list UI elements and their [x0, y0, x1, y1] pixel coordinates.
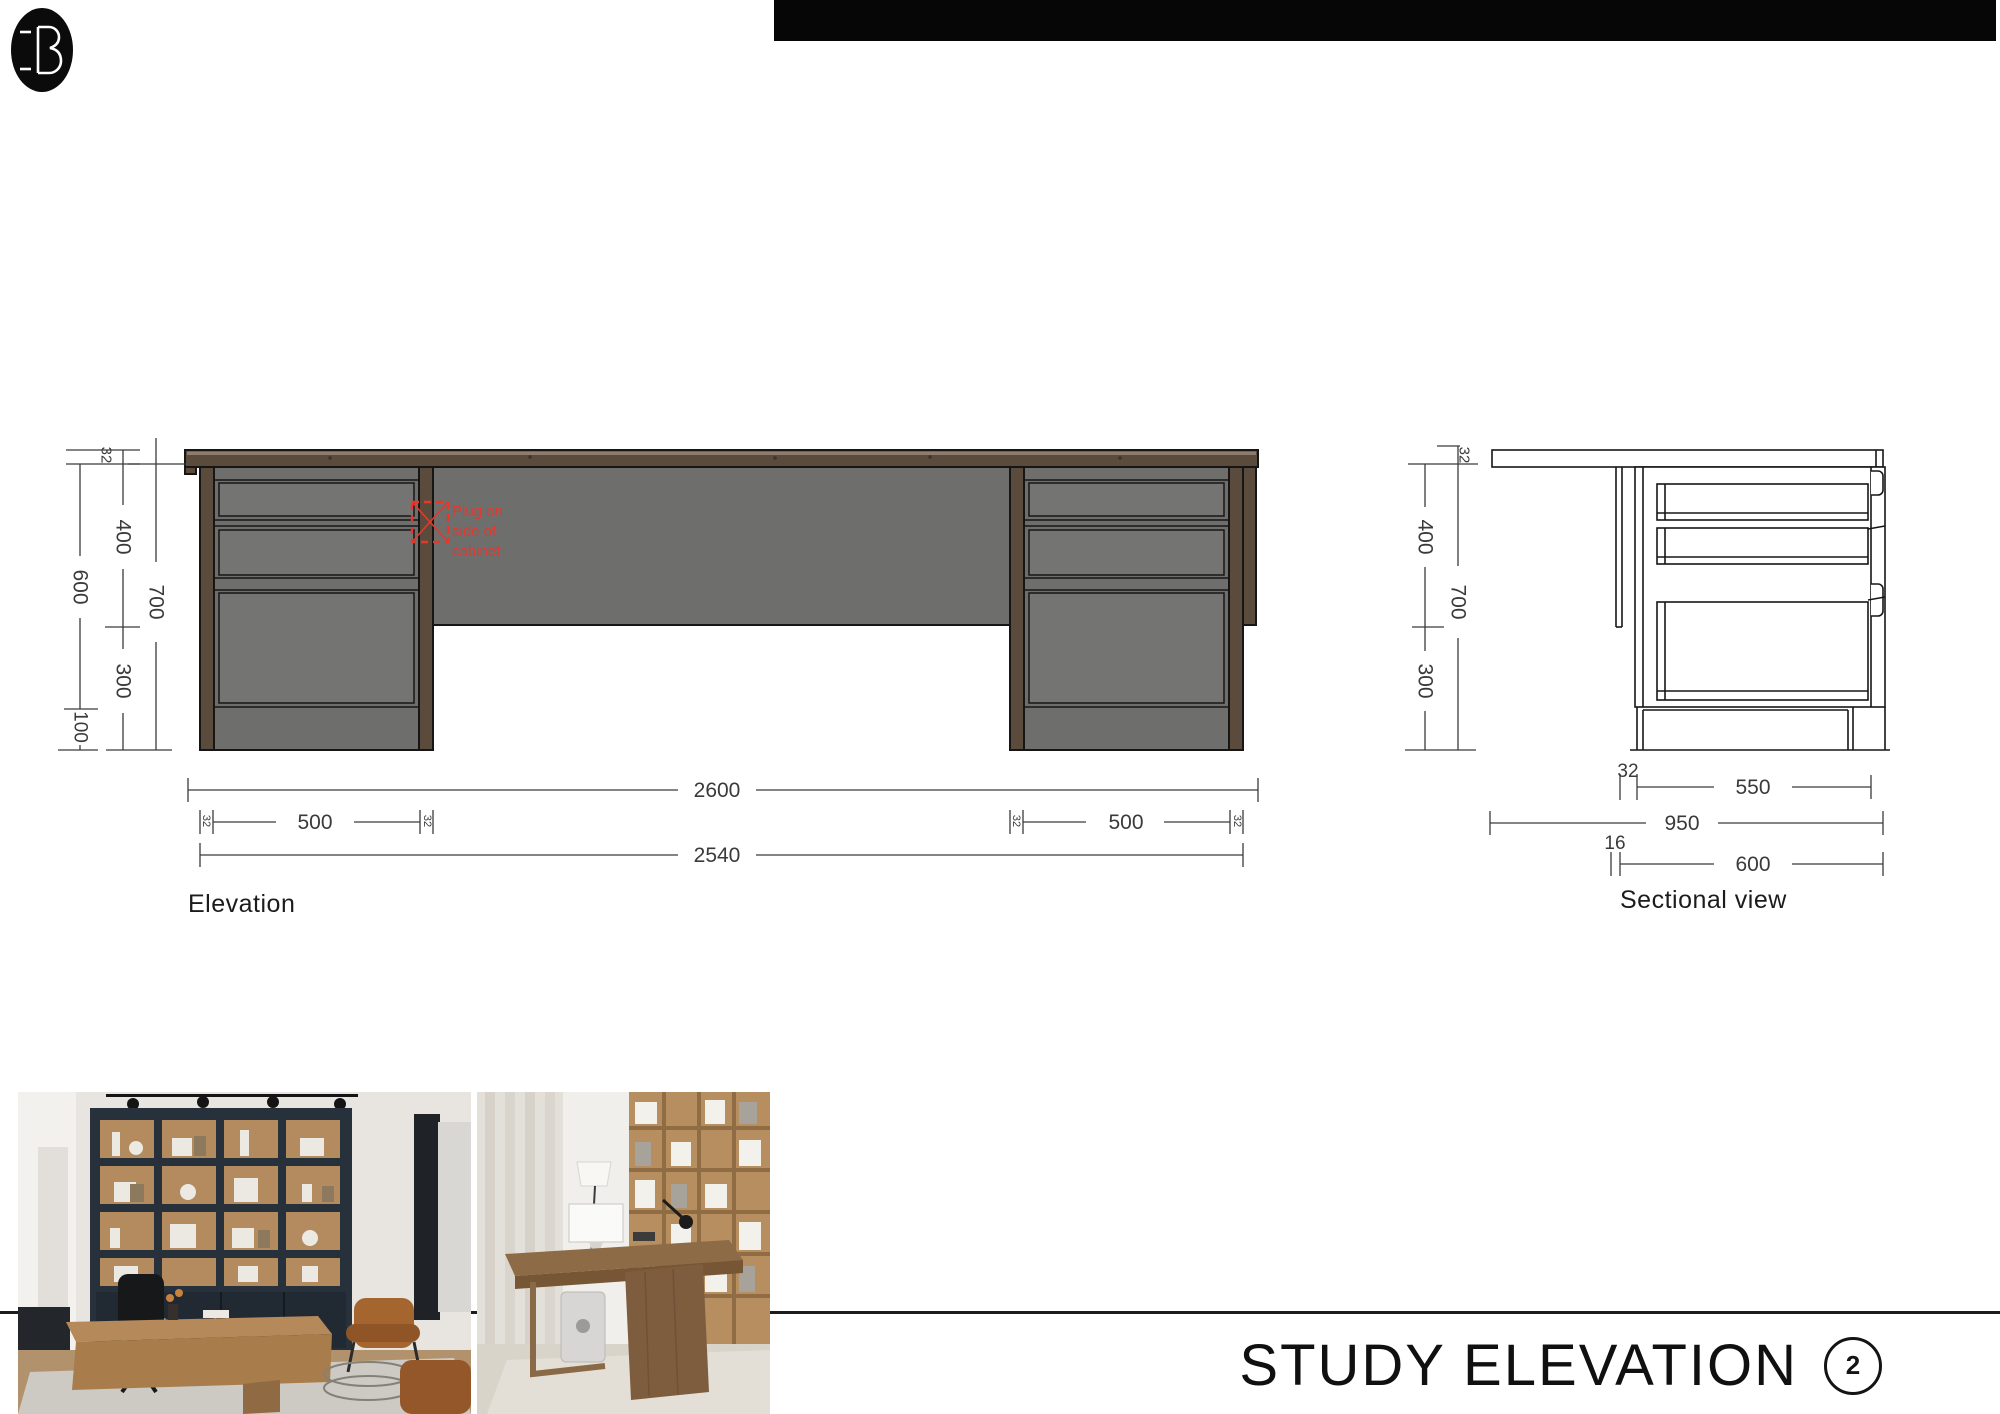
- mac-pro-tower: [561, 1292, 605, 1362]
- annotation-line-1: Plug on: [452, 503, 503, 520]
- drawer-front: [219, 530, 414, 575]
- drawer-front: [1029, 530, 1224, 575]
- page-title: STUDY ELEVATION: [1239, 1332, 1798, 1399]
- dim-height-700: 700: [1447, 584, 1470, 619]
- right-edge-panel: [1243, 467, 1256, 625]
- dim-drawer-depth-550: 550: [1735, 776, 1770, 799]
- tabletop-highlight: [187, 452, 1256, 456]
- elevation-drawing: Plug on side of cabinet 700: [30, 325, 1280, 935]
- pedestal-post: [1010, 467, 1024, 750]
- dim-height-700: 700: [145, 584, 168, 619]
- dim-panel-16: 16: [1604, 833, 1625, 854]
- right-pedestal: [1010, 467, 1243, 750]
- plinth-section: [1630, 707, 1890, 750]
- area-rug: [487, 1350, 770, 1414]
- dim-post-32: 32: [200, 815, 212, 827]
- modesty-panel: [433, 467, 1010, 625]
- handle-recess: [1871, 471, 1883, 495]
- drawing-sheet: Plug on side of cabinet 700: [0, 0, 2000, 1414]
- dim-upper-400: 400: [1414, 519, 1437, 554]
- dim-top-32: 32: [98, 447, 115, 464]
- page-number-badge: 2: [1824, 1337, 1882, 1395]
- curtains: [477, 1092, 563, 1352]
- pedestal-post: [1229, 467, 1243, 750]
- annotation-line-3: cabinet: [452, 543, 501, 560]
- annotation-line-2: side of: [452, 523, 497, 540]
- left-pedestal: [200, 467, 433, 750]
- dim-total-width-2600: 2600: [694, 779, 741, 802]
- elevation-label: Elevation: [188, 890, 295, 918]
- page-number: 2: [1846, 1350, 1860, 1381]
- brand-logo: [10, 7, 74, 93]
- dim-lower-300: 300: [1414, 663, 1437, 698]
- section-label: Sectional view: [1620, 886, 1787, 914]
- left-edge-step: [185, 467, 196, 474]
- logo-circle: [11, 8, 73, 92]
- dim-inner-width-2540: 2540: [694, 844, 741, 867]
- pedestal-post: [200, 467, 214, 750]
- dim-ped-left-500: 500: [297, 811, 332, 834]
- dim-cabinet-depth-600: 600: [1735, 853, 1770, 876]
- drawer-front: [219, 593, 414, 703]
- drawer-front: [219, 483, 414, 516]
- dim-offset-32: 32: [1617, 761, 1638, 782]
- dim-outer-600: 600: [69, 569, 92, 604]
- drawer-front: [1029, 483, 1224, 516]
- desk-elevation: [185, 450, 1258, 750]
- dim-lower-300: 300: [112, 663, 135, 698]
- dim-ped-right-500: 500: [1108, 811, 1143, 834]
- dim-total-depth-950: 950: [1664, 812, 1699, 835]
- dim-plinth-100: 100: [70, 711, 91, 743]
- dim-upper-400: 400: [112, 519, 135, 554]
- header-bar: [774, 0, 1996, 41]
- dim-post-32: 32: [1231, 815, 1243, 827]
- photo-study-room-dark: [18, 1092, 471, 1414]
- dim-post-32: 32: [1010, 815, 1022, 827]
- drawer-front: [1029, 593, 1224, 703]
- pedestal-post: [419, 467, 433, 750]
- desk-section: [1492, 450, 1890, 750]
- section-drawing: 400 300 700 32 32 550 950 16 600 Section…: [1395, 325, 1905, 935]
- handle-recess: [1871, 584, 1883, 616]
- title-block: STUDY ELEVATION 2: [1239, 1332, 1882, 1399]
- dim-top-32: 32: [1456, 447, 1473, 464]
- window-frame: [414, 1114, 440, 1320]
- dim-post-32: 32: [421, 815, 433, 827]
- photo-study-room-light: [477, 1092, 770, 1414]
